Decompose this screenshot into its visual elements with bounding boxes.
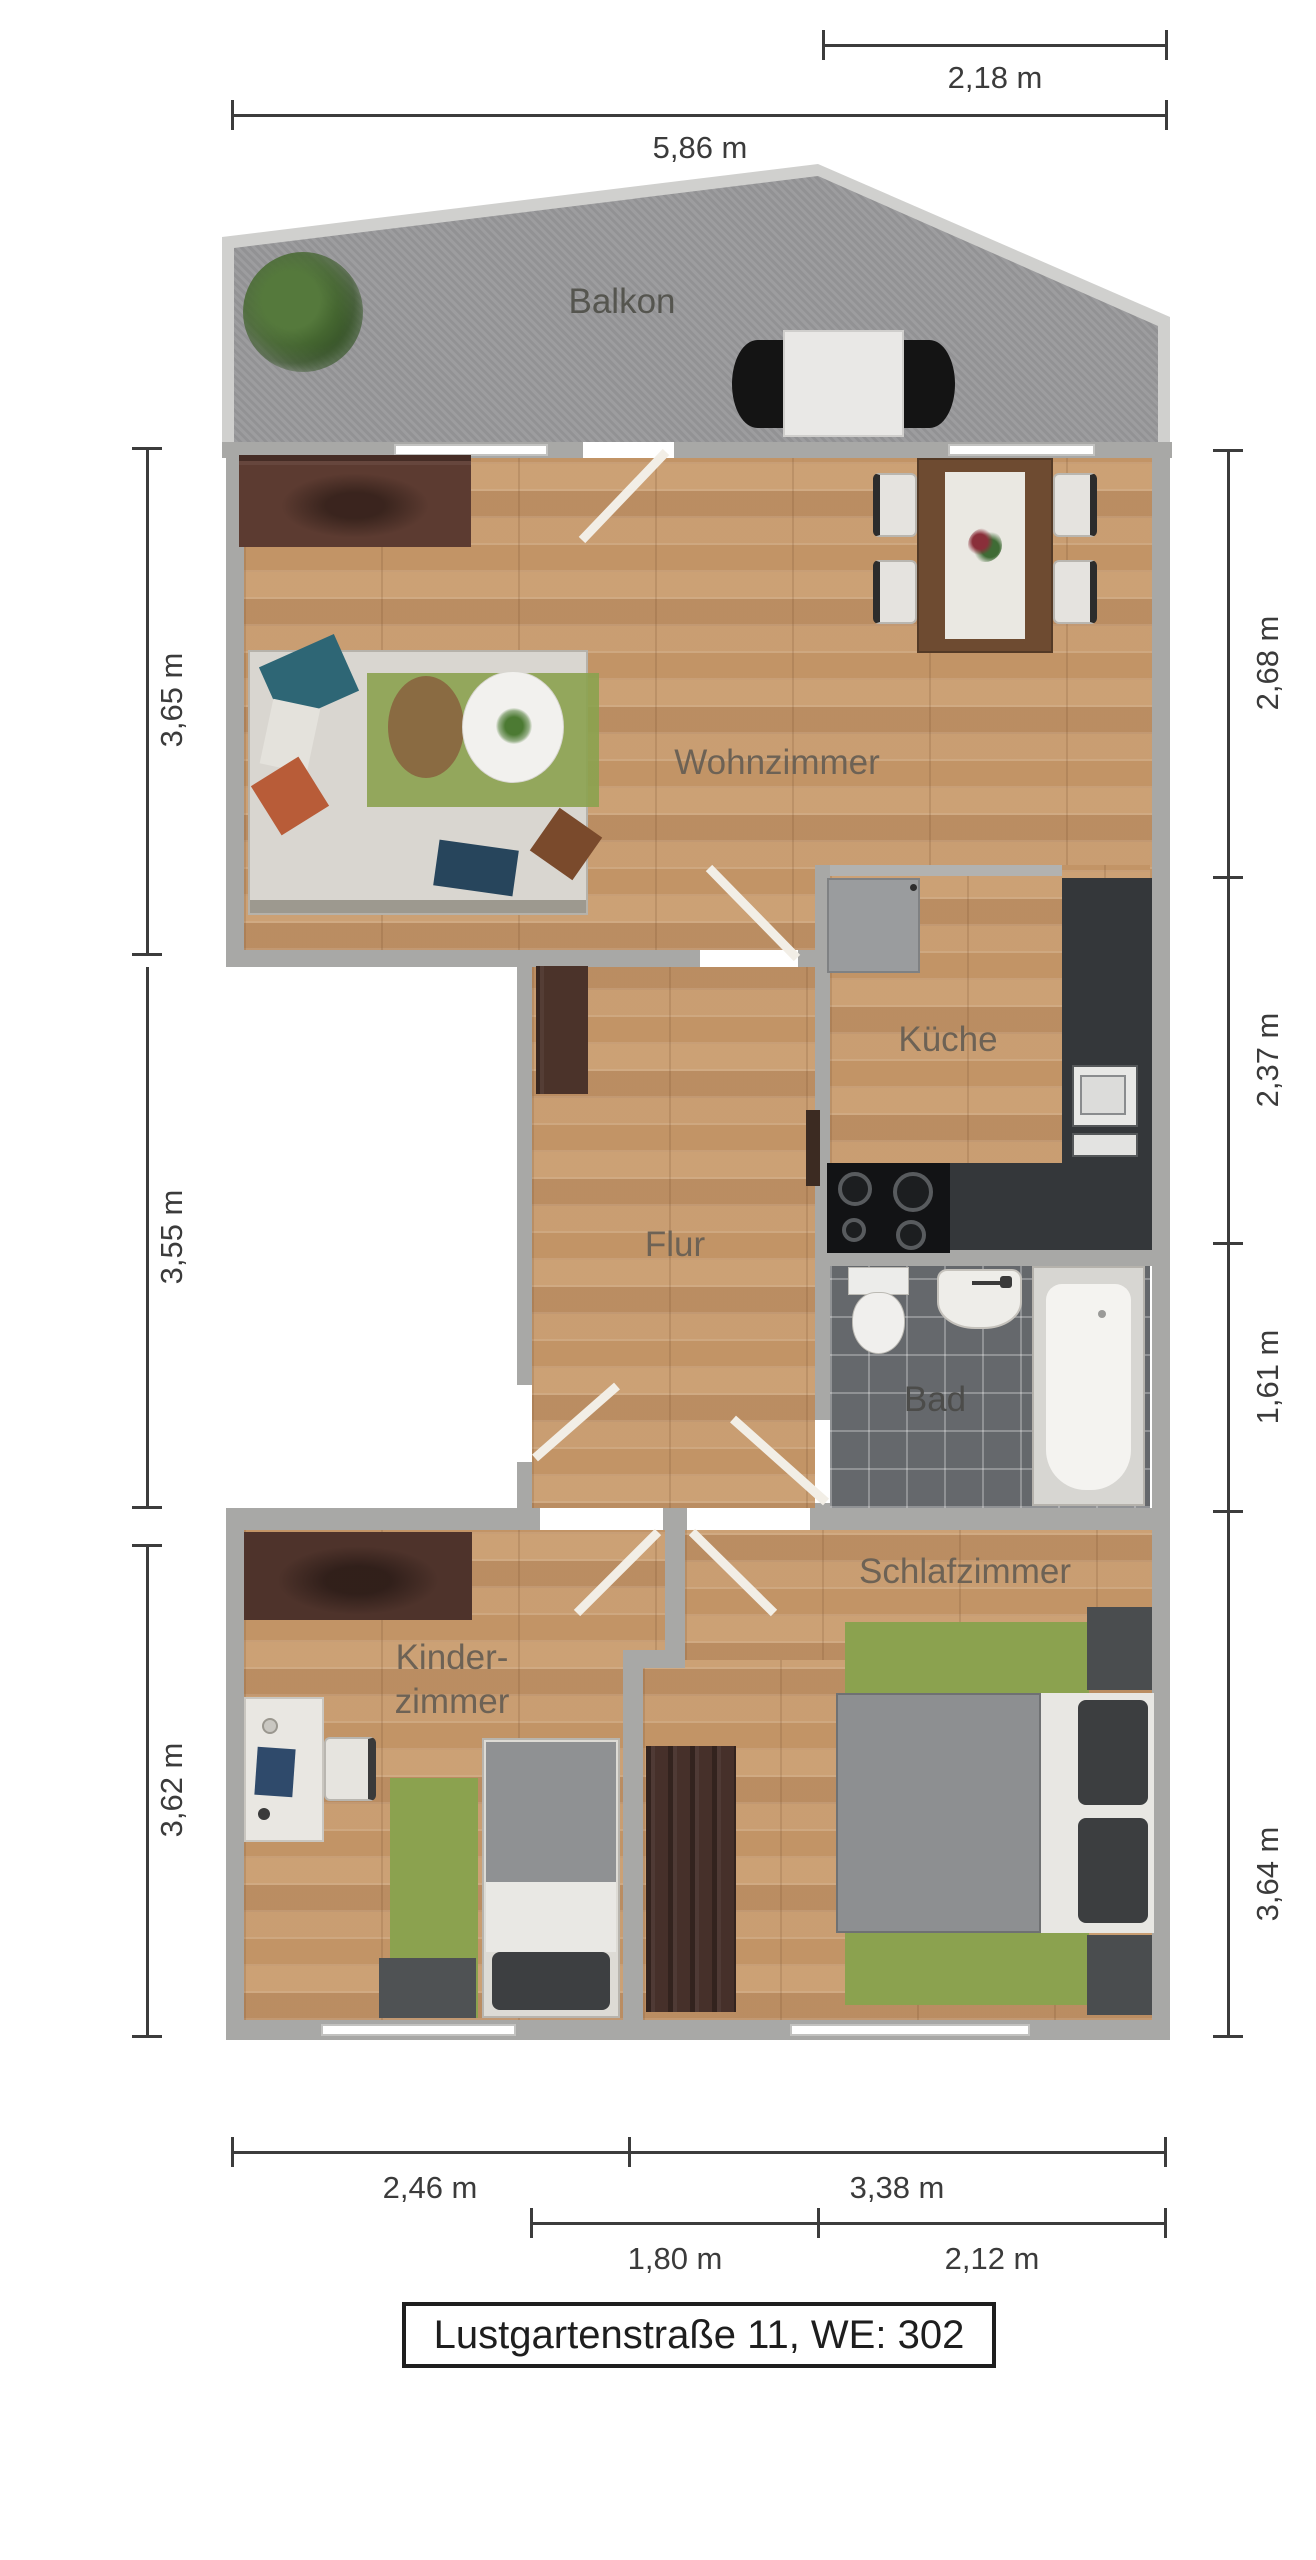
kitchen-door-panel: [806, 1110, 820, 1186]
tick: [231, 100, 234, 130]
tick: [1164, 2208, 1167, 2238]
dimension-label-right-upper: 2,68 m: [1250, 616, 1286, 711]
dimension-label-right-upper-mid: 2,37 m: [1250, 1013, 1286, 1108]
hall-wardrobe: [536, 966, 588, 1094]
tick: [1213, 449, 1243, 452]
tick: [132, 1544, 162, 1547]
label-kitchen: Küche: [898, 1020, 997, 1060]
tick: [1164, 2137, 1167, 2167]
tick: [822, 30, 825, 60]
tick: [132, 953, 162, 956]
desk-laptop-icon: [254, 1747, 295, 1798]
oven-door: [1080, 1075, 1126, 1115]
tick: [1165, 30, 1168, 60]
doorway-bedroom: [687, 1508, 810, 1530]
window-bottom-right: [790, 2024, 1030, 2036]
oven-drawer: [1072, 1133, 1138, 1157]
balcony-chair-right-icon: [904, 340, 955, 428]
label-bedroom: Schlafzimmer: [859, 1552, 1071, 1592]
fridge: [827, 878, 920, 973]
stove-burner-1: [838, 1172, 872, 1206]
window-top-right: [948, 444, 1095, 456]
dimension-line-right-upper-mid: [1227, 877, 1230, 1243]
dining-chair-4: [1053, 560, 1097, 624]
dimension-label-top-small: 2,18 m: [948, 60, 1043, 96]
bathtub-inner: [1046, 1284, 1131, 1490]
toilet-bowl-icon: [852, 1292, 905, 1354]
balcony-floor: [234, 176, 1158, 450]
dimension-label-right-lower: 3,64 m: [1250, 1827, 1286, 1922]
doorway-bath: [815, 1420, 830, 1503]
stove-burner-4: [896, 1220, 926, 1250]
tick: [231, 2137, 234, 2167]
doorway-kidsroom: [540, 1508, 663, 1530]
dimension-line-right-upper: [1227, 450, 1230, 877]
kidsroom-wardrobe: [244, 1532, 472, 1620]
double-bed-blanket: [836, 1693, 1041, 1933]
dining-chair-3: [1053, 473, 1097, 537]
sideboard: [239, 455, 471, 547]
dining-chair-2: [873, 560, 917, 624]
single-bed-sheet: [486, 1882, 616, 1952]
dining-chair-1: [873, 473, 917, 537]
tick: [530, 2208, 533, 2238]
sofa-edge: [250, 900, 586, 913]
bathtub-drain-icon: [1098, 1310, 1106, 1318]
wall-kids-bedroom-upper: [665, 1530, 685, 1657]
dimension-label-left-lower: 3,62 m: [154, 1743, 190, 1838]
wall-right: [1152, 442, 1170, 2040]
balcony-chair-left-icon: [732, 340, 783, 428]
tick: [132, 2035, 162, 2038]
dimension-line-bottom-outer: [232, 2151, 1166, 2154]
wall-left-lower: [226, 1508, 244, 2040]
wall-kids-bedroom-lower: [623, 1660, 643, 2040]
desk-chair: [324, 1737, 376, 1801]
dining-flowers-icon: [968, 528, 1002, 562]
coffee-table-round: [388, 676, 464, 778]
dimension-line-bottom-inner: [531, 2222, 1166, 2225]
double-bed-pillow-bottom: [1078, 1818, 1148, 1923]
floorplan-canvas: Balkon Wohnzimmer Küche Flur Bad Kinder-…: [0, 0, 1316, 2560]
label-hall: Flur: [645, 1225, 705, 1265]
label-kidsroom-line1: Kinder-: [396, 1638, 509, 1678]
dimension-label-bottom-left: 2,46 m: [383, 2170, 478, 2206]
plan-title: Lustgartenstraße 11, WE: 302: [434, 2313, 965, 2358]
dimension-label-left-upper: 3,65 m: [154, 653, 190, 748]
dimension-label-bottom-inner-left: 1,80 m: [628, 2241, 723, 2277]
fridge-handle-icon: [910, 884, 917, 891]
dimension-line-left-middle: [146, 967, 149, 1508]
tick: [1165, 100, 1168, 130]
dimension-line-left-upper: [146, 448, 149, 955]
label-kidsroom-line2: zimmer: [395, 1682, 510, 1722]
nightstand-top: [1087, 1607, 1152, 1690]
doorway-entrance: [517, 1385, 532, 1462]
dimension-label-top-large: 5,86 m: [653, 130, 748, 166]
desk-item-icon: [258, 1808, 270, 1820]
tick: [817, 2208, 820, 2238]
dimension-label-bottom-inner-right: 2,12 m: [945, 2241, 1040, 2277]
dimension-label-right-lower-mid: 1,61 m: [1250, 1330, 1286, 1425]
kidsroom-box: [379, 1958, 476, 2018]
sink-faucet-dot-icon: [1000, 1276, 1012, 1288]
dimension-line-right-lower: [1227, 1511, 1230, 2037]
stove-burner-3: [842, 1218, 866, 1242]
plant-icon: [243, 252, 363, 372]
tick: [1213, 2035, 1243, 2038]
bedroom-wardrobe: [646, 1746, 736, 2012]
label-living: Wohnzimmer: [674, 743, 880, 783]
nightstand-bottom: [1087, 1935, 1152, 2015]
title-box: Lustgartenstraße 11, WE: 302: [402, 2302, 996, 2368]
doorway-balcony: [583, 442, 674, 458]
label-balcony: Balkon: [568, 282, 675, 322]
wall-kitchen-top: [830, 865, 1062, 876]
dimension-line-top-large: [232, 114, 1167, 117]
tick: [628, 2137, 631, 2167]
window-bottom-left: [321, 2024, 516, 2036]
single-bed-blanket: [486, 1742, 616, 1882]
table-plant-icon: [496, 708, 532, 744]
double-bed-pillow-top: [1078, 1700, 1148, 1805]
single-bed-pillow: [492, 1952, 610, 2010]
dimension-line-top-small: [823, 44, 1167, 47]
desk-lamp-icon: [262, 1718, 278, 1734]
doorway-living-hall: [700, 950, 798, 967]
label-bath: Bad: [904, 1380, 966, 1420]
dimension-label-bottom-right: 3,38 m: [850, 2170, 945, 2206]
tick: [132, 447, 162, 450]
stove-burner-2: [893, 1172, 933, 1212]
dimension-line-right-lower-mid: [1227, 1243, 1230, 1511]
toilet-tank: [848, 1267, 909, 1295]
dimension-label-left-middle: 3,55 m: [154, 1190, 190, 1285]
balcony-table: [783, 330, 904, 437]
tick: [132, 1506, 162, 1509]
dimension-line-left-lower: [146, 1545, 149, 2037]
